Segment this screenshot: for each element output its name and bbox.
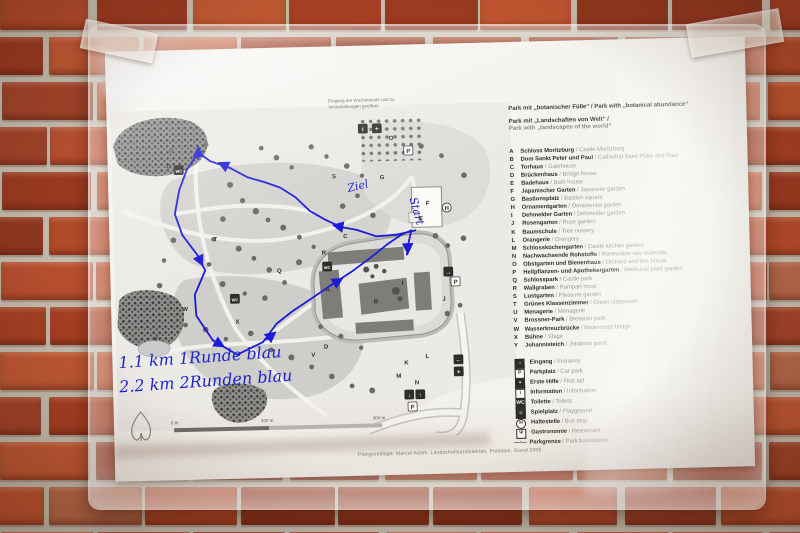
map-letter-F: F — [426, 201, 430, 207]
photo-scene: Ziel Start SRQTUWXDVABCEFGIJKLMNOY PPPi+… — [0, 0, 800, 533]
legend-icon-list: →Eingang / EntrancePParkplatz / Car park… — [514, 353, 748, 448]
legend-icon-de: Haltestelle — [531, 418, 560, 428]
brick — [0, 127, 47, 165]
north-arrow-icon — [126, 409, 157, 444]
legend-icon-de: Erste Hilfe — [530, 378, 559, 388]
legend-icon-en: / Playground — [558, 407, 592, 418]
map-letter-C: C — [343, 234, 348, 240]
toilets-icon: WC — [515, 398, 525, 408]
legend-key: M — [512, 244, 523, 252]
legend-key: T — [513, 301, 524, 309]
brick — [0, 0, 88, 30]
map-letter-Y: Y — [154, 337, 158, 343]
brick — [2, 172, 92, 210]
plastic-sleeve: Ziel Start SRQTUWXDVABCEFGIJKLMNOY PPPi+… — [88, 24, 766, 510]
legend-key: D — [510, 172, 521, 180]
legend-icon-de: Parkplatz — [530, 368, 556, 378]
scale-label-100: 100 m — [261, 418, 274, 423]
legend-icon-de: Information — [530, 388, 562, 398]
legend-key: I — [511, 212, 522, 220]
map-letter-R: R — [322, 251, 327, 257]
brick — [2, 82, 94, 120]
brick — [770, 352, 800, 390]
legend-key: N — [512, 253, 523, 261]
map-letter-W: W — [182, 307, 188, 313]
brick — [0, 397, 41, 435]
map-letter-A: A — [325, 287, 330, 293]
legend-icon-de: Parkgrenze — [529, 438, 560, 448]
legend-key: O — [512, 261, 523, 269]
brick — [0, 352, 94, 390]
playground-icon: ☺ — [516, 408, 526, 418]
map-letter-S: S — [332, 174, 336, 180]
legend-icon-en: / Park boundaries — [561, 436, 608, 447]
map-letter-D: D — [324, 344, 329, 350]
legend-icon-en: / Information — [562, 387, 596, 398]
map-mark-→: → — [444, 267, 453, 276]
map-letter-U: U — [166, 164, 170, 170]
legend-label-en: / Johannis pond — [564, 339, 607, 348]
svg-text:+: + — [457, 370, 461, 376]
map-mark-↓: ↓ — [405, 390, 414, 399]
brick — [1, 262, 93, 300]
legend-key: X — [514, 333, 525, 341]
svg-text:P: P — [406, 149, 410, 155]
park-boundary-icon: —·— — [516, 439, 524, 447]
legend-key: S — [513, 293, 524, 301]
legend-key: G — [510, 196, 521, 204]
svg-text:+: + — [375, 127, 379, 133]
map-mark-P: P — [408, 402, 417, 411]
legend-icon-en: / First aid — [559, 377, 585, 387]
svg-text:→: → — [445, 270, 451, 276]
svg-text:H: H — [445, 206, 449, 212]
legend-icon-de: Spielplatz — [531, 408, 558, 418]
information-icon: i — [515, 388, 525, 398]
legend-icon-en: / Restaurant — [567, 427, 600, 438]
map-mark-i: i — [358, 124, 367, 133]
legend-label-en: / Green classroom — [588, 298, 637, 307]
legend-key: V — [513, 317, 524, 325]
legend-key: F — [510, 188, 521, 196]
legend-key: W — [514, 325, 525, 333]
restaurant-icon: Ψ — [516, 428, 526, 438]
legend-icon-de: Toilette — [530, 398, 550, 408]
map-mark-WC: WC — [323, 262, 332, 271]
map-mark-↑: ↑ — [416, 390, 425, 399]
legend-icon-de: Eingang — [529, 358, 552, 368]
legend-key: U — [513, 309, 524, 317]
map-mark-+: + — [454, 367, 463, 376]
legend-key: K — [511, 228, 522, 236]
legend-key: R — [513, 285, 524, 293]
brick — [769, 172, 800, 210]
legend-item-list: ASchloss Moritzburg / Castle MoritzburgB… — [509, 142, 746, 350]
svg-text:↓: ↓ — [408, 393, 411, 399]
map-mark-WC: WC — [230, 294, 239, 303]
map-mark-H: H — [442, 203, 451, 212]
brick — [0, 307, 46, 345]
legend-key: C — [510, 164, 521, 172]
map-letter-K: K — [404, 361, 409, 367]
legend-label-en: / Medicinal plant garden — [619, 265, 682, 275]
entrance-icon: → — [514, 358, 524, 368]
svg-text:WC: WC — [324, 265, 331, 270]
legend-key: H — [511, 204, 522, 212]
legend-key: E — [510, 180, 521, 188]
svg-text:↑: ↑ — [419, 393, 422, 399]
legend-label-de: Johannisteich — [525, 340, 564, 349]
park-map-paper: Ziel Start SRQTUWXDVABCEFGIJKLMNOY PPPi+… — [105, 36, 755, 482]
map-letter-V: V — [311, 353, 315, 359]
map-letter-J: J — [442, 297, 445, 303]
parking-icon: P — [515, 368, 525, 378]
legend-key: B — [510, 156, 521, 164]
map-mark-+: + — [372, 124, 381, 133]
legend-label-en: / Dehmelder garden — [572, 210, 625, 219]
svg-text:P: P — [411, 405, 415, 411]
map-letter-M: M — [396, 374, 401, 380]
map-mark-WC: WC — [174, 166, 183, 175]
scale-label-0: 0 m — [171, 420, 179, 425]
map-letter-N: N — [415, 380, 419, 386]
legend-label-en: / Watercross bridge — [579, 323, 631, 332]
legend-icon-en: / Toilets — [551, 397, 572, 407]
legend-panel: Park mit „botanischer Fülle“ / Park with… — [508, 100, 748, 448]
map-letter-O: O — [389, 136, 394, 142]
legend-key: J — [511, 220, 522, 228]
legend-key: A — [509, 148, 520, 156]
map-letter-X: X — [235, 320, 239, 326]
map-letter-L: L — [425, 354, 429, 360]
legend-key: Y — [514, 341, 525, 349]
legend-icon-en: / Entrance — [552, 357, 580, 367]
brick — [769, 262, 800, 300]
map-letter-Q: Q — [277, 269, 282, 275]
map-letter-T: T — [214, 237, 218, 243]
map-letter-G: G — [380, 175, 385, 181]
brick — [0, 487, 44, 525]
svg-text:P: P — [454, 280, 458, 286]
bus-stop-icon: H — [516, 418, 526, 428]
legend-key: L — [511, 236, 522, 244]
svg-text:WC: WC — [232, 297, 239, 302]
legend-key: Q — [512, 277, 523, 285]
map-mark-P: P — [404, 146, 413, 155]
brick — [0, 217, 43, 255]
legend-icon-en: / Car park — [555, 367, 582, 377]
brick — [768, 82, 800, 120]
legend-icon-en: / Bus stop — [560, 417, 588, 427]
brick — [0, 37, 43, 75]
legend-key: P — [512, 269, 523, 277]
map-mark-←: ← — [454, 355, 463, 364]
map-letter-E: E — [419, 216, 423, 222]
map-letter-B: B — [374, 299, 379, 305]
map-mark-P: P — [451, 277, 460, 286]
svg-text:WC: WC — [175, 169, 182, 174]
svg-text:←: ← — [455, 358, 461, 364]
brick — [0, 442, 90, 480]
scale-label-300: 300 m — [373, 415, 386, 420]
brick — [769, 442, 800, 480]
first-aid-icon: + — [515, 378, 525, 388]
